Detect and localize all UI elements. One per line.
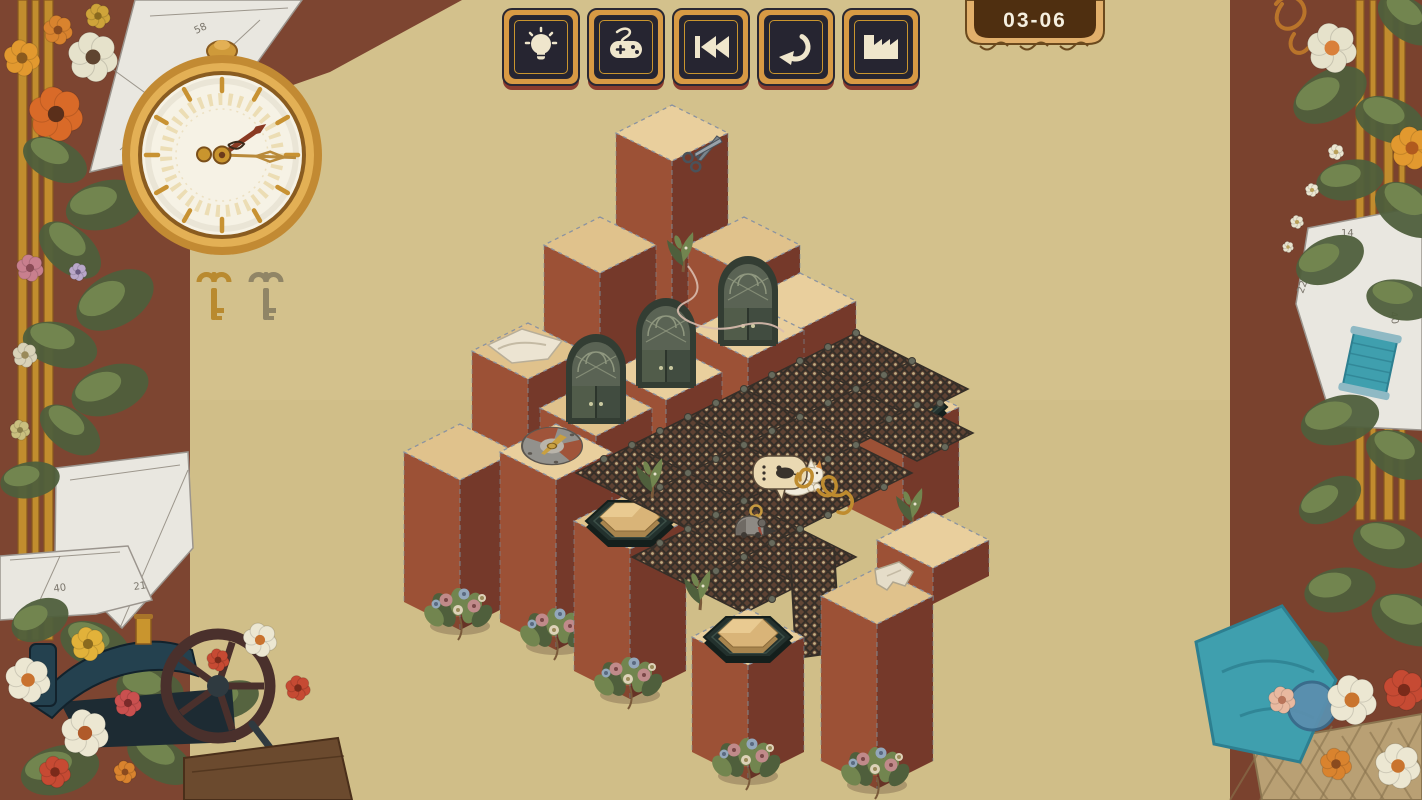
glass-jar bbox=[1288, 682, 1336, 730]
blossom-center bbox=[744, 758, 748, 762]
level-badge: 03-06 bbox=[966, 0, 1104, 50]
door-sill bbox=[568, 418, 624, 424]
blossom-center bbox=[614, 667, 618, 671]
key-tooth bbox=[216, 316, 222, 320]
bubble-dot bbox=[762, 465, 765, 468]
lace-trim-dot bbox=[741, 442, 748, 449]
door-knob bbox=[669, 366, 673, 370]
lace-trim-dot bbox=[685, 526, 692, 533]
mouse-silhouette-ear bbox=[777, 466, 782, 471]
thread-spool-gold bbox=[136, 618, 151, 644]
flower-center bbox=[21, 673, 35, 687]
flower-center bbox=[75, 269, 80, 274]
lace-trim-dot bbox=[769, 540, 776, 547]
flower-center bbox=[17, 53, 28, 64]
flower-center bbox=[1310, 188, 1314, 192]
screw bbox=[570, 433, 574, 436]
bud bbox=[914, 503, 917, 506]
lace-trim-dot bbox=[713, 400, 720, 407]
blossom-center bbox=[889, 763, 893, 767]
bubble-dot bbox=[762, 477, 765, 480]
flower-center bbox=[83, 639, 93, 649]
lace-trim-dot bbox=[769, 428, 776, 435]
key-shaft bbox=[263, 288, 269, 320]
flower-center bbox=[94, 12, 101, 19]
door[interactable] bbox=[566, 334, 626, 424]
blossom-center bbox=[861, 757, 865, 761]
blossom-center bbox=[768, 746, 772, 750]
flower-center bbox=[1278, 696, 1286, 704]
lace-trim-dot bbox=[797, 526, 804, 533]
blossom-center bbox=[732, 748, 736, 752]
lace-trim-dot bbox=[685, 414, 692, 421]
mechanism-disc bbox=[522, 427, 582, 464]
flower-center bbox=[1295, 220, 1299, 224]
level-badge-group: 03-06 bbox=[966, 0, 1104, 50]
lace-trim-dot bbox=[914, 402, 921, 409]
pattern-label: 40 bbox=[53, 582, 67, 595]
arm-pivot bbox=[548, 443, 557, 449]
mouse-wheel bbox=[755, 532, 761, 538]
blossom-center bbox=[750, 742, 754, 746]
lace-trim-dot bbox=[881, 372, 888, 379]
blossom-center bbox=[552, 628, 556, 632]
door[interactable] bbox=[718, 256, 778, 346]
lace-trim-dot bbox=[937, 400, 944, 407]
bud bbox=[685, 247, 688, 250]
cat-eye bbox=[816, 472, 818, 474]
flower-center bbox=[1331, 759, 1341, 769]
flower-center bbox=[21, 351, 28, 358]
door[interactable] bbox=[636, 298, 696, 388]
blossom-center bbox=[642, 673, 646, 677]
blossom-center bbox=[568, 624, 572, 628]
lace-trim-dot bbox=[825, 344, 832, 351]
door-sill bbox=[638, 382, 694, 388]
blossom-center bbox=[456, 608, 460, 612]
scene-canvas: 584021 142240 03-06 bbox=[0, 0, 1422, 800]
blossom-center bbox=[760, 754, 764, 758]
blossom-center bbox=[530, 622, 534, 626]
level-label: 03-06 bbox=[1003, 9, 1067, 32]
lace-trim-dot bbox=[741, 386, 748, 393]
toolbar-button-restart[interactable] bbox=[757, 8, 835, 86]
door-knob bbox=[599, 402, 603, 406]
watch-crown-top bbox=[214, 40, 230, 50]
wheel-hub bbox=[207, 675, 229, 697]
restart-icon bbox=[774, 25, 818, 69]
lace-trim-dot bbox=[713, 568, 720, 575]
blossom-center bbox=[480, 596, 484, 600]
lace-trim-dot bbox=[657, 540, 664, 547]
blossom-center bbox=[879, 751, 883, 755]
lace-trim-dot bbox=[657, 484, 664, 491]
iso-column[interactable] bbox=[821, 562, 933, 799]
gamepad-icon bbox=[604, 25, 648, 69]
door-sill bbox=[720, 340, 776, 346]
lace-trim-dot bbox=[853, 330, 860, 337]
blossom-center bbox=[540, 618, 544, 622]
key-tooth bbox=[268, 316, 274, 320]
flower-center bbox=[78, 726, 92, 740]
mouse-ear bbox=[758, 519, 766, 527]
key-nub bbox=[264, 272, 269, 282]
lace-trim-dot bbox=[713, 456, 720, 463]
flower-center bbox=[50, 767, 60, 777]
blossom-center bbox=[650, 665, 654, 669]
flower-center bbox=[1334, 150, 1339, 155]
lace-trim-dot bbox=[629, 442, 636, 449]
door-knob bbox=[589, 402, 593, 406]
door-knob bbox=[659, 366, 663, 370]
flower-center bbox=[26, 264, 34, 272]
toolbar-button-hint[interactable] bbox=[502, 8, 580, 86]
toolbar-button-controls[interactable] bbox=[587, 8, 665, 86]
bud bbox=[702, 585, 705, 588]
counterweight bbox=[197, 147, 211, 161]
mouse-wheel bbox=[741, 532, 747, 538]
blossom-center bbox=[558, 612, 562, 616]
blossom-center bbox=[434, 602, 438, 606]
lace-trim-dot bbox=[797, 414, 804, 421]
lace-trim-dot bbox=[825, 456, 832, 463]
door-knob bbox=[751, 324, 755, 328]
lace-trim-dot bbox=[713, 512, 720, 519]
game-viewport: 584021 142240 03-06 bbox=[0, 0, 1422, 800]
iso-column[interactable] bbox=[574, 493, 686, 709]
key-tooth bbox=[216, 308, 224, 313]
gilded-bar bbox=[18, 0, 27, 640]
lace-trim-dot bbox=[797, 358, 804, 365]
lightbulb-icon bbox=[519, 25, 563, 69]
factory-icon bbox=[859, 25, 903, 69]
screw bbox=[528, 452, 532, 455]
flower-center bbox=[54, 26, 63, 35]
flower-center bbox=[1398, 684, 1410, 696]
blossom-center bbox=[851, 761, 855, 765]
key-nub bbox=[212, 272, 217, 282]
blossom-center bbox=[722, 752, 726, 756]
lace-trim-dot bbox=[853, 386, 860, 393]
toolbar-button-factory[interactable] bbox=[842, 8, 920, 86]
bubble-dot bbox=[762, 471, 765, 474]
blossom-center bbox=[626, 677, 630, 681]
blossom-center bbox=[462, 592, 466, 596]
lace-trim-dot bbox=[769, 372, 776, 379]
lace-trim-dot bbox=[685, 470, 692, 477]
lace-trim-dot bbox=[825, 400, 832, 407]
lace-trim-dot bbox=[909, 358, 916, 365]
flower-center bbox=[1286, 245, 1289, 248]
blossom-center bbox=[632, 661, 636, 665]
key-tooth bbox=[268, 308, 276, 313]
lace-trim-dot bbox=[601, 456, 608, 463]
rewind-icon bbox=[689, 25, 733, 69]
bud bbox=[654, 473, 657, 476]
lace-trim-dot bbox=[825, 512, 832, 519]
lace-trim-dot bbox=[886, 416, 893, 423]
screw bbox=[554, 461, 558, 464]
spool-flange bbox=[134, 614, 153, 619]
flower-center bbox=[122, 769, 129, 776]
blossom-center bbox=[873, 767, 877, 771]
flower-center bbox=[255, 635, 265, 645]
blossom-center bbox=[472, 604, 476, 608]
flower-center bbox=[86, 50, 101, 65]
lace-trim-dot bbox=[741, 554, 748, 561]
toolbar-button-skip-to-start[interactable] bbox=[672, 8, 750, 86]
lace-trim-dot bbox=[769, 596, 776, 603]
flower-center bbox=[124, 699, 132, 707]
lace-trim-dot bbox=[853, 442, 860, 449]
flower-center bbox=[294, 684, 301, 691]
flower-center bbox=[48, 106, 64, 122]
flower-center bbox=[1345, 693, 1360, 708]
flower-center bbox=[1391, 759, 1405, 773]
flower-center bbox=[1325, 41, 1340, 56]
lace-trim-dot bbox=[657, 428, 664, 435]
flower-center bbox=[1406, 142, 1419, 155]
blossom-center bbox=[604, 671, 608, 675]
center-pin bbox=[219, 152, 225, 158]
blossom-center bbox=[444, 598, 448, 602]
lace-trim-dot bbox=[741, 498, 748, 505]
pattern-label: 21 bbox=[133, 580, 147, 593]
key-shaft bbox=[211, 288, 217, 320]
flower-center bbox=[215, 657, 222, 664]
lace-trim-dot bbox=[881, 484, 888, 491]
lace-trim-dot bbox=[942, 444, 949, 451]
iso-column[interactable] bbox=[404, 424, 516, 640]
blossom-center bbox=[897, 755, 901, 759]
gilded-bar bbox=[32, 0, 39, 640]
flower-center bbox=[17, 427, 23, 433]
